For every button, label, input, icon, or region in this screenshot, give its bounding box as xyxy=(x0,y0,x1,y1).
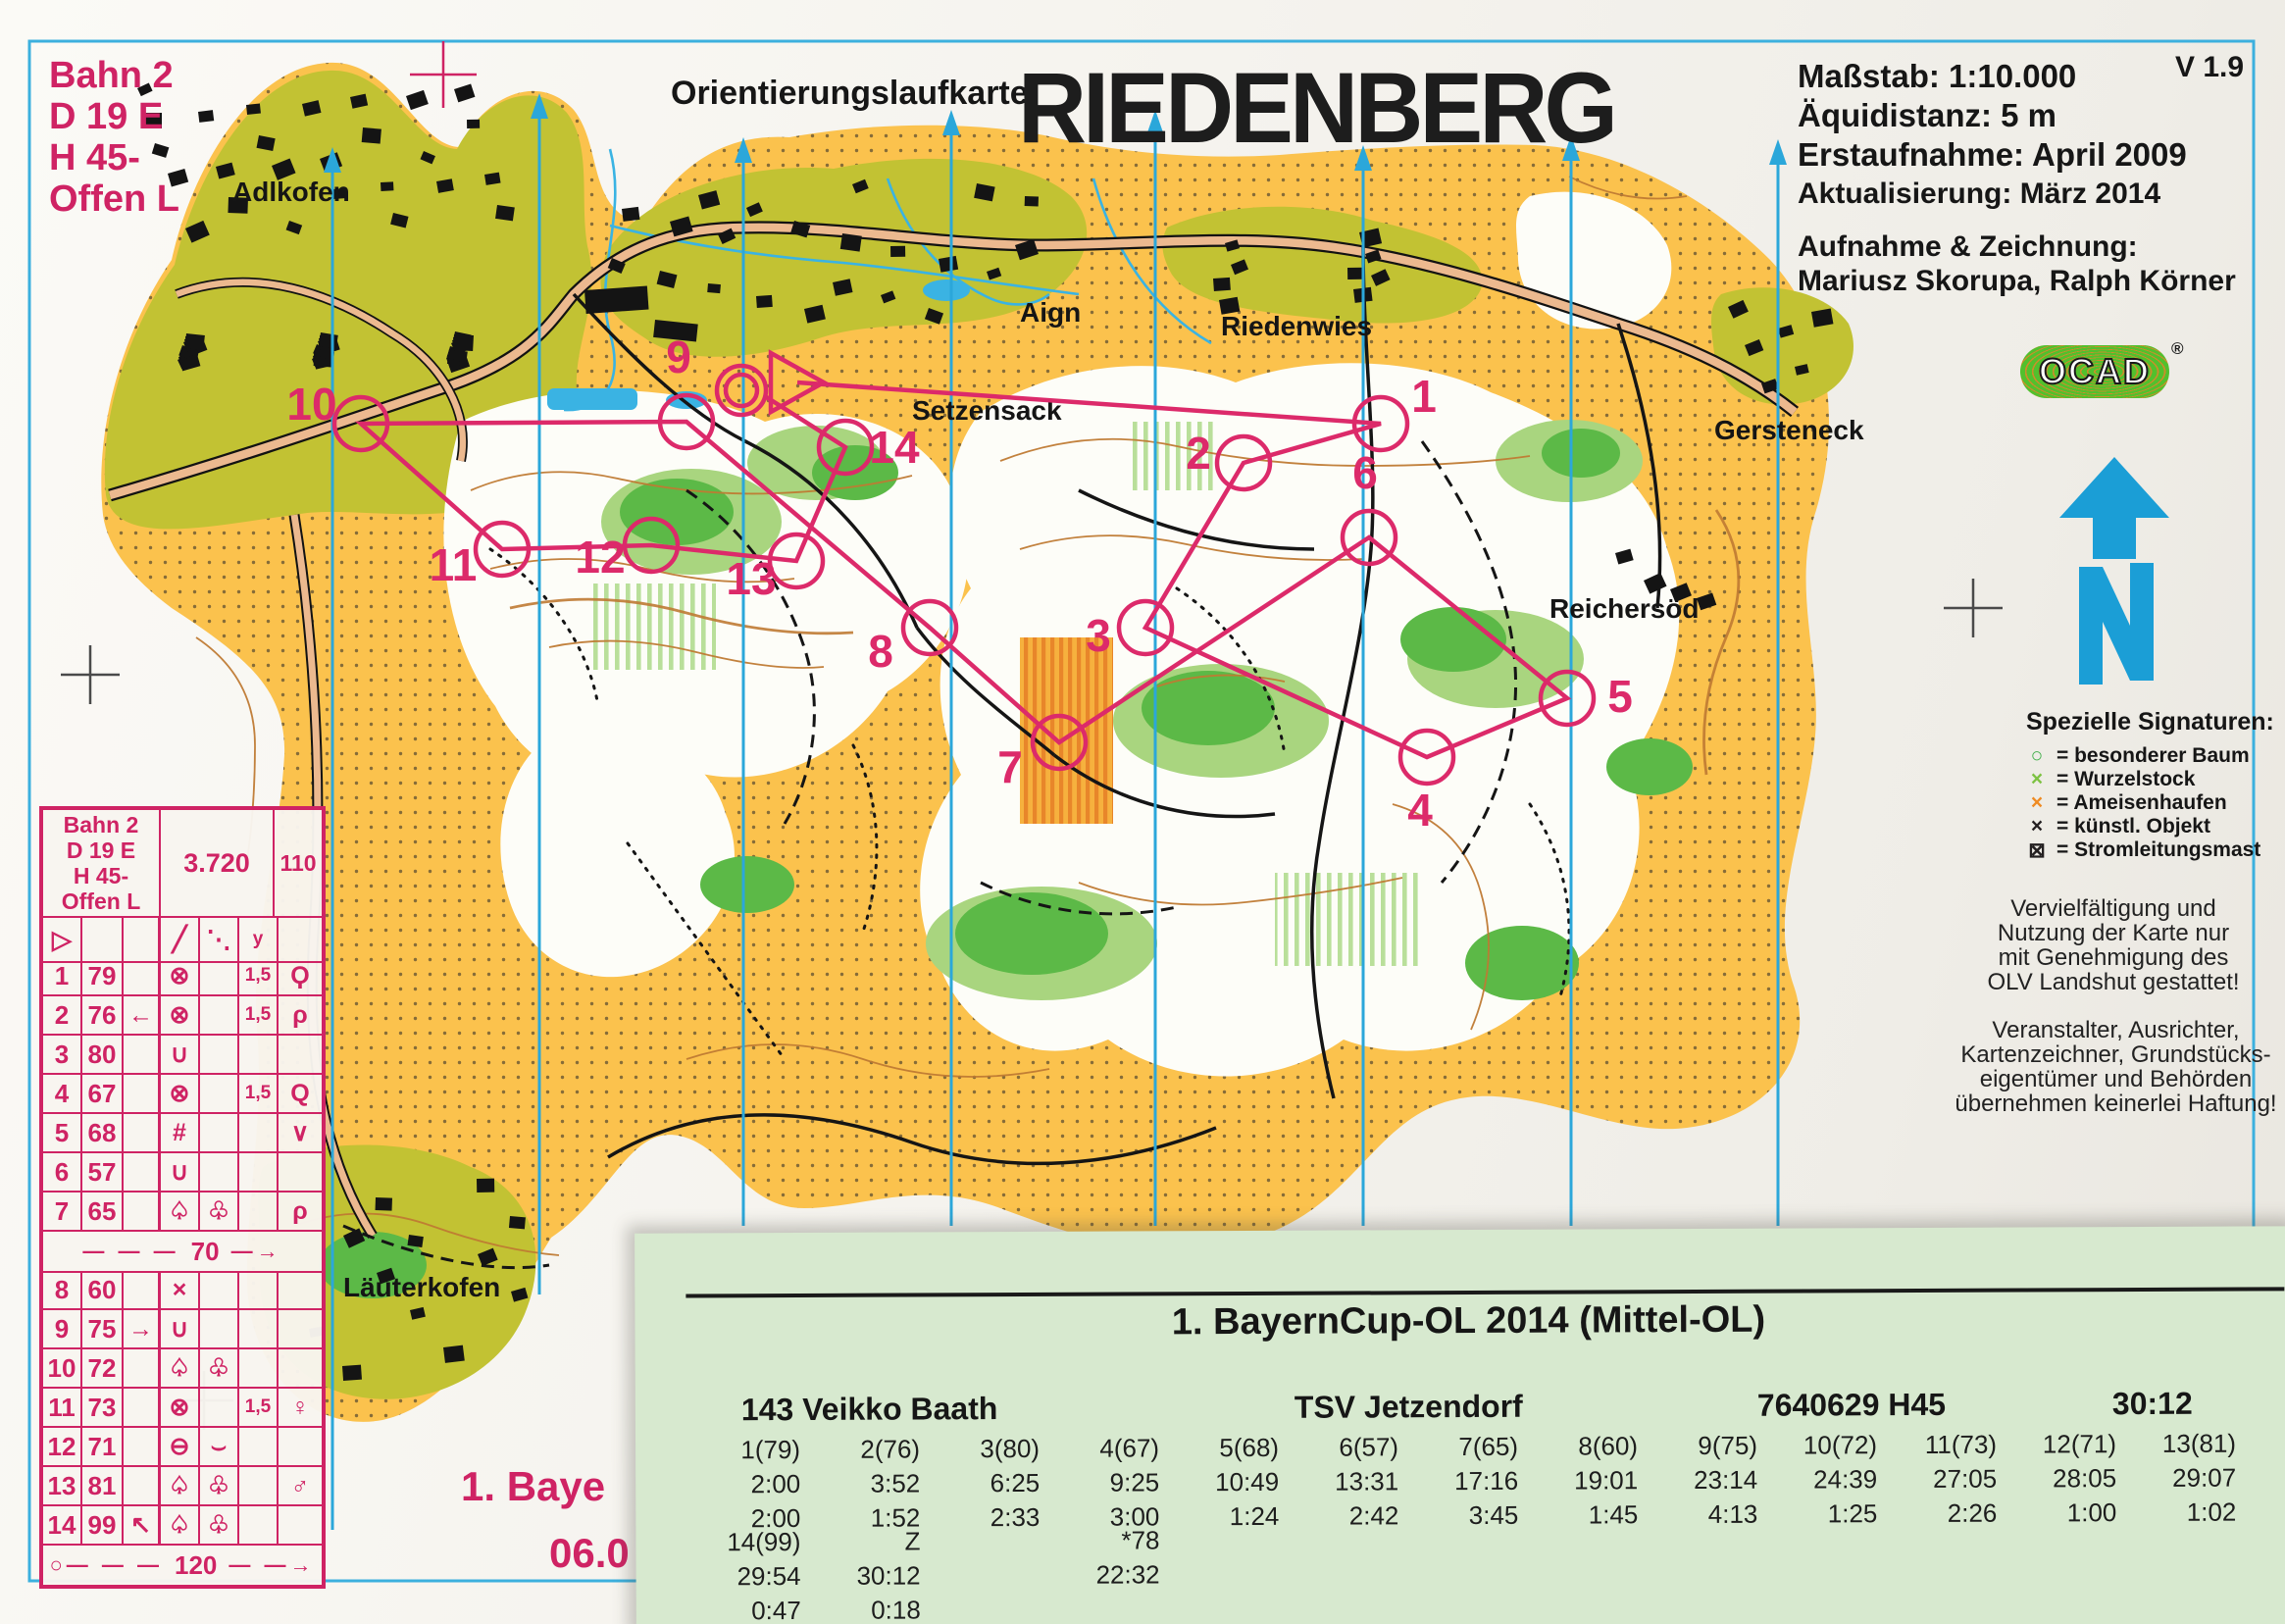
svg-text:1: 1 xyxy=(1411,371,1437,422)
credits-block: Aufnahme & Zeichnung: Mariusz Skorupa, R… xyxy=(1798,229,2236,298)
slip-rule-line xyxy=(685,1287,2284,1297)
sheet-cell: 60 xyxy=(82,1271,124,1310)
sheet-cell: ⌣ xyxy=(200,1428,239,1467)
split-tail-cell xyxy=(2116,1521,2236,1556)
split-cell: 6:25 xyxy=(920,1468,1040,1503)
sheet-cell xyxy=(124,1075,161,1114)
sheet-cell xyxy=(200,1114,239,1153)
map-label: Adlkofen xyxy=(232,177,350,207)
copyright-notice: Vervielfältigung und Nutzung der Karte n… xyxy=(1961,896,2265,994)
sheet-cell: ρ xyxy=(279,1193,322,1232)
sheet-cell: 1 xyxy=(43,957,82,996)
split-tail-cell xyxy=(1280,1593,1399,1624)
sheet-cell: ♧ xyxy=(200,1506,239,1546)
sheet-cell: 57 xyxy=(82,1153,124,1193)
sheet-cell: # xyxy=(161,1114,200,1153)
sheet-cell: ↖ xyxy=(124,1506,161,1546)
sheet-cell: ρ xyxy=(279,996,322,1036)
split-cell: 27:05 xyxy=(1877,1464,1997,1499)
sheet-cell xyxy=(124,1349,161,1389)
sheet-cell xyxy=(200,957,239,996)
sheet-cell: 67 xyxy=(82,1075,124,1114)
sheet-cell: ♧ xyxy=(200,1193,239,1232)
sheet-cell xyxy=(279,1349,322,1389)
credits-heading: Aufnahme & Zeichnung: xyxy=(1798,229,2236,264)
course-id-block: Bahn 2 D 19 E H 45- Offen L xyxy=(49,55,179,220)
splits-table-tail: 14(99)Z*7829:5430:1222:320:470:18 xyxy=(681,1521,2236,1624)
svg-text:2: 2 xyxy=(1186,428,1211,479)
sheet-cell: × xyxy=(161,1271,200,1310)
split-tail-cell xyxy=(921,1595,1041,1624)
legend-label: = besonderer Baum xyxy=(2056,744,2250,768)
svg-text:8: 8 xyxy=(868,626,893,677)
split-cell: 17:16 xyxy=(1398,1466,1518,1501)
legend-symbol-icon: × xyxy=(2026,815,2048,838)
sheet-cell xyxy=(239,1271,279,1310)
credits-names: Mariusz Skorupa, Ralph Körner xyxy=(1798,264,2236,298)
split-tail-cell xyxy=(920,1526,1040,1561)
sheet-cell: ∪ xyxy=(161,1036,200,1075)
sheet-cell: ∨ xyxy=(279,1114,322,1153)
split-cell: 3:52 xyxy=(800,1468,920,1503)
split-tail-cell: 14(99) xyxy=(681,1527,800,1562)
svg-text:12: 12 xyxy=(575,532,625,583)
sheet-cell xyxy=(239,1506,279,1546)
split-tail-cell xyxy=(1878,1556,1998,1592)
sheet-cell: 10 xyxy=(43,1349,82,1389)
legend-items: ○= besonderer Baum×= Wurzelstock×= Ameis… xyxy=(2026,744,2274,862)
north-arrowhead-icon xyxy=(1769,139,1787,165)
sheet-cell xyxy=(124,1389,161,1428)
legend-label: = künstl. Objekt xyxy=(2056,815,2210,838)
event-title: 1. BayernCup-OL 2014 (Mittel-OL) xyxy=(635,1296,2285,1345)
split-tail-cell xyxy=(1519,1557,1639,1593)
split-tail-cell xyxy=(1280,1558,1399,1594)
sheet-cell: 76 xyxy=(82,996,124,1036)
sheet-course-line: H 45- xyxy=(62,863,141,888)
sheet-cell: 8 xyxy=(43,1271,82,1310)
sheet-cell xyxy=(279,1506,322,1546)
equidistance-line: Äquidistanz: 5 m xyxy=(1798,96,2187,135)
sheet-cell: 3 xyxy=(43,1036,82,1075)
split-tail-cell xyxy=(2117,1555,2237,1591)
runner-club: TSV Jetzendorf xyxy=(1295,1389,1523,1426)
sheet-cell: 72 xyxy=(82,1349,124,1389)
split-tail-cell xyxy=(1159,1525,1279,1560)
split-tail-cell: 29:54 xyxy=(682,1561,801,1597)
sheet-cell xyxy=(124,957,161,996)
ocad-logo: OCAD xyxy=(2020,345,2169,398)
split-cell: 6(57) xyxy=(1279,1432,1398,1467)
results-slip: 1. BayernCup-OL 2014 (Mittel-OL) 143 Vei… xyxy=(635,1226,2285,1624)
sheet-cell xyxy=(124,1114,161,1153)
sheet-cell xyxy=(124,1036,161,1075)
sheet-cell: Ϙ xyxy=(279,957,322,996)
notice-line: Kartenzeichner, Grundstücks- xyxy=(1947,1042,2285,1067)
sheet-cell xyxy=(200,1153,239,1193)
north-arrow-icon xyxy=(2057,457,2171,692)
building xyxy=(184,333,204,350)
split-tail-cell: 22:32 xyxy=(1041,1559,1160,1595)
sheet-cell: ♧ xyxy=(200,1467,239,1506)
sheet-cell: ♧ xyxy=(200,1349,239,1389)
building xyxy=(454,83,475,102)
split-tail-cell: *78 xyxy=(1040,1525,1159,1560)
sheet-course-cell: Bahn 2 D 19 E H 45- Offen L xyxy=(43,810,161,918)
building xyxy=(376,1197,392,1211)
split-tail-cell xyxy=(1758,1591,1878,1624)
split-cell: 8(60) xyxy=(1518,1431,1638,1466)
split-cell: 9(75) xyxy=(1638,1431,1757,1466)
sheet-cell: ♂ xyxy=(279,1467,322,1506)
sheet-cell: Q xyxy=(279,1075,322,1114)
sheet-cell: ← xyxy=(124,996,161,1036)
event-date-partial: 06.0 xyxy=(549,1530,630,1577)
north-arrowhead-icon xyxy=(942,110,960,135)
sheet-cell: 7 xyxy=(43,1193,82,1232)
notice-line: Nutzung der Karte nur xyxy=(1961,921,2265,945)
course-line: H 45- xyxy=(49,137,179,178)
split-cell: 28:05 xyxy=(1997,1463,2116,1498)
split-cell: 23:14 xyxy=(1638,1465,1757,1500)
split-cell: 24:39 xyxy=(1757,1464,1877,1499)
course-climb-cell: 110 xyxy=(275,810,322,918)
sheet-cell xyxy=(239,1349,279,1389)
building xyxy=(407,1235,423,1247)
ocad-logo-text: OCAD xyxy=(2039,351,2151,392)
split-cell: 12(71) xyxy=(1997,1429,2116,1464)
split-tail-cell xyxy=(1041,1594,1160,1624)
sheet-cell xyxy=(239,1428,279,1467)
sheet-cell: 65 xyxy=(82,1193,124,1232)
legend-symbol-icon: × xyxy=(2026,768,2048,791)
split-cell: 13:31 xyxy=(1279,1466,1398,1501)
sheet-rows: ▷╱⋱y179⊗1,5Ϙ276←⊗1,5ρ380∪467⊗1,5Q568#∨65… xyxy=(43,918,322,1585)
legend-item: ⊠= Stromleitungsmast xyxy=(2026,838,2274,862)
split-tail-cell xyxy=(1998,1555,2117,1591)
building xyxy=(467,120,480,128)
svg-text:6: 6 xyxy=(1352,447,1378,498)
split-tail-cell xyxy=(1877,1522,1997,1557)
sheet-cell: 2 xyxy=(43,996,82,1036)
split-cell: 19:01 xyxy=(1518,1465,1638,1500)
sheet-cell xyxy=(200,1310,239,1349)
sheet-course-line: Bahn 2 xyxy=(62,812,141,837)
sheet-cell xyxy=(279,1153,322,1193)
svg-text:7: 7 xyxy=(997,741,1023,792)
split-tail-cell xyxy=(1518,1523,1638,1558)
sheet-cell xyxy=(124,1153,161,1193)
control-description-sheet: Bahn 2 D 19 E H 45- Offen L 3.720 110 ▷╱… xyxy=(39,806,326,1589)
sheet-cell xyxy=(124,1428,161,1467)
svg-text:3: 3 xyxy=(1086,610,1111,661)
sheet-cell: 5 xyxy=(43,1114,82,1153)
sheet-cell: 14 xyxy=(43,1506,82,1546)
sheet-cell: 1,5 xyxy=(239,1075,279,1114)
sheet-cell xyxy=(124,1467,161,1506)
map-type-label: Orientierungslaufkarte xyxy=(671,75,1029,113)
building xyxy=(840,233,862,252)
sheet-cell: ⊗ xyxy=(161,957,200,996)
sheet-cell: 1,5 xyxy=(239,957,279,996)
sheet-cell xyxy=(200,996,239,1036)
map-title: RIEDENBERG xyxy=(1018,51,1614,166)
map-label: Gersteneck xyxy=(1714,415,1864,445)
notice-line: OLV Landshut gestattet! xyxy=(1961,970,2265,994)
sheet-cell: 73 xyxy=(82,1389,124,1428)
split-tail-cell: 0:47 xyxy=(682,1596,801,1624)
course-line: D 19 E xyxy=(49,96,179,137)
split-tail-cell xyxy=(1160,1594,1280,1624)
legend-label: = Ameisenhaufen xyxy=(2056,791,2227,815)
si-card-and-class: 7640629 H45 xyxy=(1757,1387,1946,1424)
legend-item: ×= Wurzelstock xyxy=(2026,768,2274,791)
sheet-cell xyxy=(200,1075,239,1114)
split-cell: 4(67) xyxy=(1040,1433,1159,1468)
divider-distance: 120 xyxy=(175,1550,217,1581)
sheet-cell: 81 xyxy=(82,1467,124,1506)
sheet-cell: 99 xyxy=(82,1506,124,1546)
sheet-cell: 68 xyxy=(82,1114,124,1153)
notice-line: eigentümer und Behörden xyxy=(1947,1067,2285,1091)
map-label: Aign xyxy=(1020,297,1081,328)
svg-text:10: 10 xyxy=(286,379,336,430)
sheet-cell: ⊖ xyxy=(161,1428,200,1467)
course-line: Bahn 2 xyxy=(49,55,179,96)
liability-notice: Veranstalter, Ausrichter, Kartenzeichner… xyxy=(1947,1018,2285,1116)
legend-title: Spezielle Signaturen: xyxy=(2026,708,2274,736)
split-cell: 1(79) xyxy=(681,1435,800,1470)
sheet-cell xyxy=(279,1036,322,1075)
sheet-cell: 9 xyxy=(43,1310,82,1349)
sheet-cell xyxy=(279,1428,322,1467)
legend-item: ○= besonderer Baum xyxy=(2026,744,2274,768)
building xyxy=(1213,278,1231,291)
legend-item: ×= Ameisenhaufen xyxy=(2026,791,2274,815)
divider-arrow-icon: — —→ xyxy=(228,1552,315,1578)
sheet-cell: ♀ xyxy=(279,1389,322,1428)
sheet-cell: ♤ xyxy=(161,1467,200,1506)
building xyxy=(362,127,381,144)
split-cell: 2(76) xyxy=(800,1434,920,1469)
sheet-cell: ♤ xyxy=(161,1349,200,1389)
divider-dashes: ○— — — xyxy=(49,1552,163,1578)
split-tail-cell xyxy=(1398,1524,1518,1559)
legend-item: ×= künstl. Objekt xyxy=(2026,815,2274,838)
svg-text:14: 14 xyxy=(869,422,920,473)
split-cell: 7(65) xyxy=(1398,1432,1518,1467)
sheet-cell: ♤ xyxy=(161,1506,200,1546)
building xyxy=(443,1345,465,1363)
split-tail-cell xyxy=(1639,1557,1758,1593)
sheet-cell: ♤ xyxy=(161,1193,200,1232)
split-tail-cell xyxy=(1878,1591,1998,1624)
legend-symbol-icon: ○ xyxy=(2026,744,2048,768)
scanned-orienteering-map-page: Adlkofen Aign Riedenwies Setzensack Gers… xyxy=(0,0,2285,1624)
sheet-cell: 1,5 xyxy=(239,1389,279,1428)
split-tail-cell xyxy=(2117,1590,2237,1624)
sheet-cell xyxy=(279,1310,322,1349)
sheet-cell xyxy=(239,1193,279,1232)
sheet-cell: ∪ xyxy=(161,1153,200,1193)
split-cell: 29:07 xyxy=(2116,1463,2236,1498)
runner-bib-name: 143 Veikko Baath xyxy=(741,1391,998,1428)
sheet-header: Bahn 2 D 19 E H 45- Offen L 3.720 110 xyxy=(43,810,322,918)
map-label: Läuterkofen xyxy=(343,1272,500,1302)
sheet-cell: 80 xyxy=(82,1036,124,1075)
building xyxy=(406,90,429,110)
scale-line: Maßstab: 1:10.000 xyxy=(1798,57,2187,96)
sheet-cell xyxy=(239,1036,279,1075)
sheet-cell: 11 xyxy=(43,1389,82,1428)
building xyxy=(484,173,501,185)
sheet-cell: ∪ xyxy=(161,1310,200,1349)
map-info-block: Maßstab: 1:10.000 Äquidistanz: 5 m Ersta… xyxy=(1798,57,2187,214)
split-tail-cell xyxy=(1638,1523,1757,1558)
split-cell: 13(81) xyxy=(2116,1429,2236,1464)
split-tail-cell xyxy=(1519,1592,1639,1624)
sheet-cell xyxy=(239,1467,279,1506)
legend-label: = Stromleitungsmast xyxy=(2056,838,2260,862)
building xyxy=(1811,309,1833,328)
sheet-cell xyxy=(239,1153,279,1193)
svg-text:9: 9 xyxy=(666,331,691,382)
legend-symbol-icon: ⊠ xyxy=(2026,838,2048,863)
notice-line: mit Genehmigung des xyxy=(1961,945,2265,970)
split-tail-cell xyxy=(1639,1592,1758,1624)
building xyxy=(622,207,639,222)
map-label: Riedenwies xyxy=(1221,311,1372,341)
building xyxy=(495,205,515,221)
divider-distance: 70 xyxy=(191,1237,220,1267)
split-tail-cell: 0:18 xyxy=(801,1595,921,1624)
notice-line: Vervielfältigung und xyxy=(1961,896,2265,921)
building xyxy=(890,246,905,257)
building xyxy=(509,1216,526,1229)
total-time: 30:12 xyxy=(2112,1386,2193,1422)
sheet-cell: → xyxy=(124,1310,161,1349)
sheet-cell xyxy=(124,1271,161,1310)
split-tail-cell xyxy=(1399,1558,1519,1594)
special-symbols-legend: Spezielle Signaturen: ○= besonderer Baum… xyxy=(2026,708,2274,862)
sheet-route-divider: ○— — —120— —→ xyxy=(43,1546,322,1585)
split-tail-cell xyxy=(1757,1522,1877,1557)
sheet-route-divider: — — —70—→ xyxy=(43,1232,322,1273)
building xyxy=(246,104,261,115)
sheet-course-line: Offen L xyxy=(62,888,141,914)
sheet-cell: 71 xyxy=(82,1428,124,1467)
split-tail-cell xyxy=(1758,1556,1878,1592)
building xyxy=(477,1179,494,1193)
sheet-cell: ⊗ xyxy=(161,1389,200,1428)
legend-label: = Wurzelstock xyxy=(2056,768,2195,791)
sheet-cell: 12 xyxy=(43,1428,82,1467)
sheet-cell: 1,5 xyxy=(239,996,279,1036)
sheet-cell xyxy=(124,1193,161,1232)
split-tail-cell: Z xyxy=(800,1526,920,1561)
divider-dashes: — — — xyxy=(82,1239,178,1264)
split-cell: 11(73) xyxy=(1877,1430,1997,1465)
sheet-cell: 75 xyxy=(82,1310,124,1349)
split-cell: 10(72) xyxy=(1757,1430,1877,1465)
sheet-cell xyxy=(200,1271,239,1310)
sheet-cell xyxy=(200,1036,239,1075)
split-tail-cell xyxy=(1998,1590,2117,1624)
split-cell: 10:49 xyxy=(1159,1467,1279,1502)
event-name-partial: 1. Baye xyxy=(461,1463,605,1510)
course-line: Offen L xyxy=(49,178,179,220)
building xyxy=(1025,196,1039,206)
building xyxy=(381,181,393,191)
split-tail-cell xyxy=(921,1560,1041,1596)
sheet-cell: ⊗ xyxy=(161,996,200,1036)
course-length-cell: 3.720 xyxy=(161,810,275,918)
sheet-cell xyxy=(239,1310,279,1349)
split-tail-cell: 30:12 xyxy=(801,1560,921,1596)
sheet-cell: ⊗ xyxy=(161,1075,200,1114)
svg-text:4: 4 xyxy=(1407,785,1433,836)
sheet-cell xyxy=(239,1114,279,1153)
split-cell: 2:00 xyxy=(681,1469,800,1504)
building xyxy=(756,295,773,308)
split-cell: 5(68) xyxy=(1159,1433,1279,1468)
sheet-cell xyxy=(200,1389,239,1428)
notice-line: Veranstalter, Ausrichter, xyxy=(1947,1018,2285,1042)
svg-text:11: 11 xyxy=(430,539,478,590)
building xyxy=(198,110,214,123)
legend-symbol-icon: × xyxy=(2026,791,2048,815)
building xyxy=(1347,268,1363,279)
divider-arrow-icon: —→ xyxy=(231,1239,282,1264)
building xyxy=(342,1365,362,1381)
registered-trademark-icon: ® xyxy=(2171,339,2184,359)
svg-text:13: 13 xyxy=(726,553,776,604)
sheet-cell xyxy=(279,1271,322,1310)
sheet-cell: 6 xyxy=(43,1153,82,1193)
split-cell: 3(80) xyxy=(920,1434,1040,1469)
svg-text:5: 5 xyxy=(1607,671,1633,722)
sheet-cell: 13 xyxy=(43,1467,82,1506)
split-tail-cell xyxy=(1160,1559,1280,1595)
split-cell: 9:25 xyxy=(1040,1467,1159,1502)
split-tail-cell xyxy=(1997,1521,2116,1556)
update-line: Aktualisierung: März 2014 xyxy=(1798,175,2187,214)
notice-line: übernehmen keinerlei Haftung! xyxy=(1947,1091,2285,1116)
building xyxy=(707,283,721,293)
survey-line: Erstaufnahme: April 2009 xyxy=(1798,135,2187,175)
building xyxy=(319,332,338,349)
sheet-cell: 79 xyxy=(82,957,124,996)
split-tail-cell xyxy=(1399,1593,1519,1624)
sheet-course-line: D 19 E xyxy=(62,837,141,863)
map-label: Reichersöd xyxy=(1549,593,1700,624)
sheet-cell: 4 xyxy=(43,1075,82,1114)
split-tail-cell xyxy=(1279,1524,1398,1559)
